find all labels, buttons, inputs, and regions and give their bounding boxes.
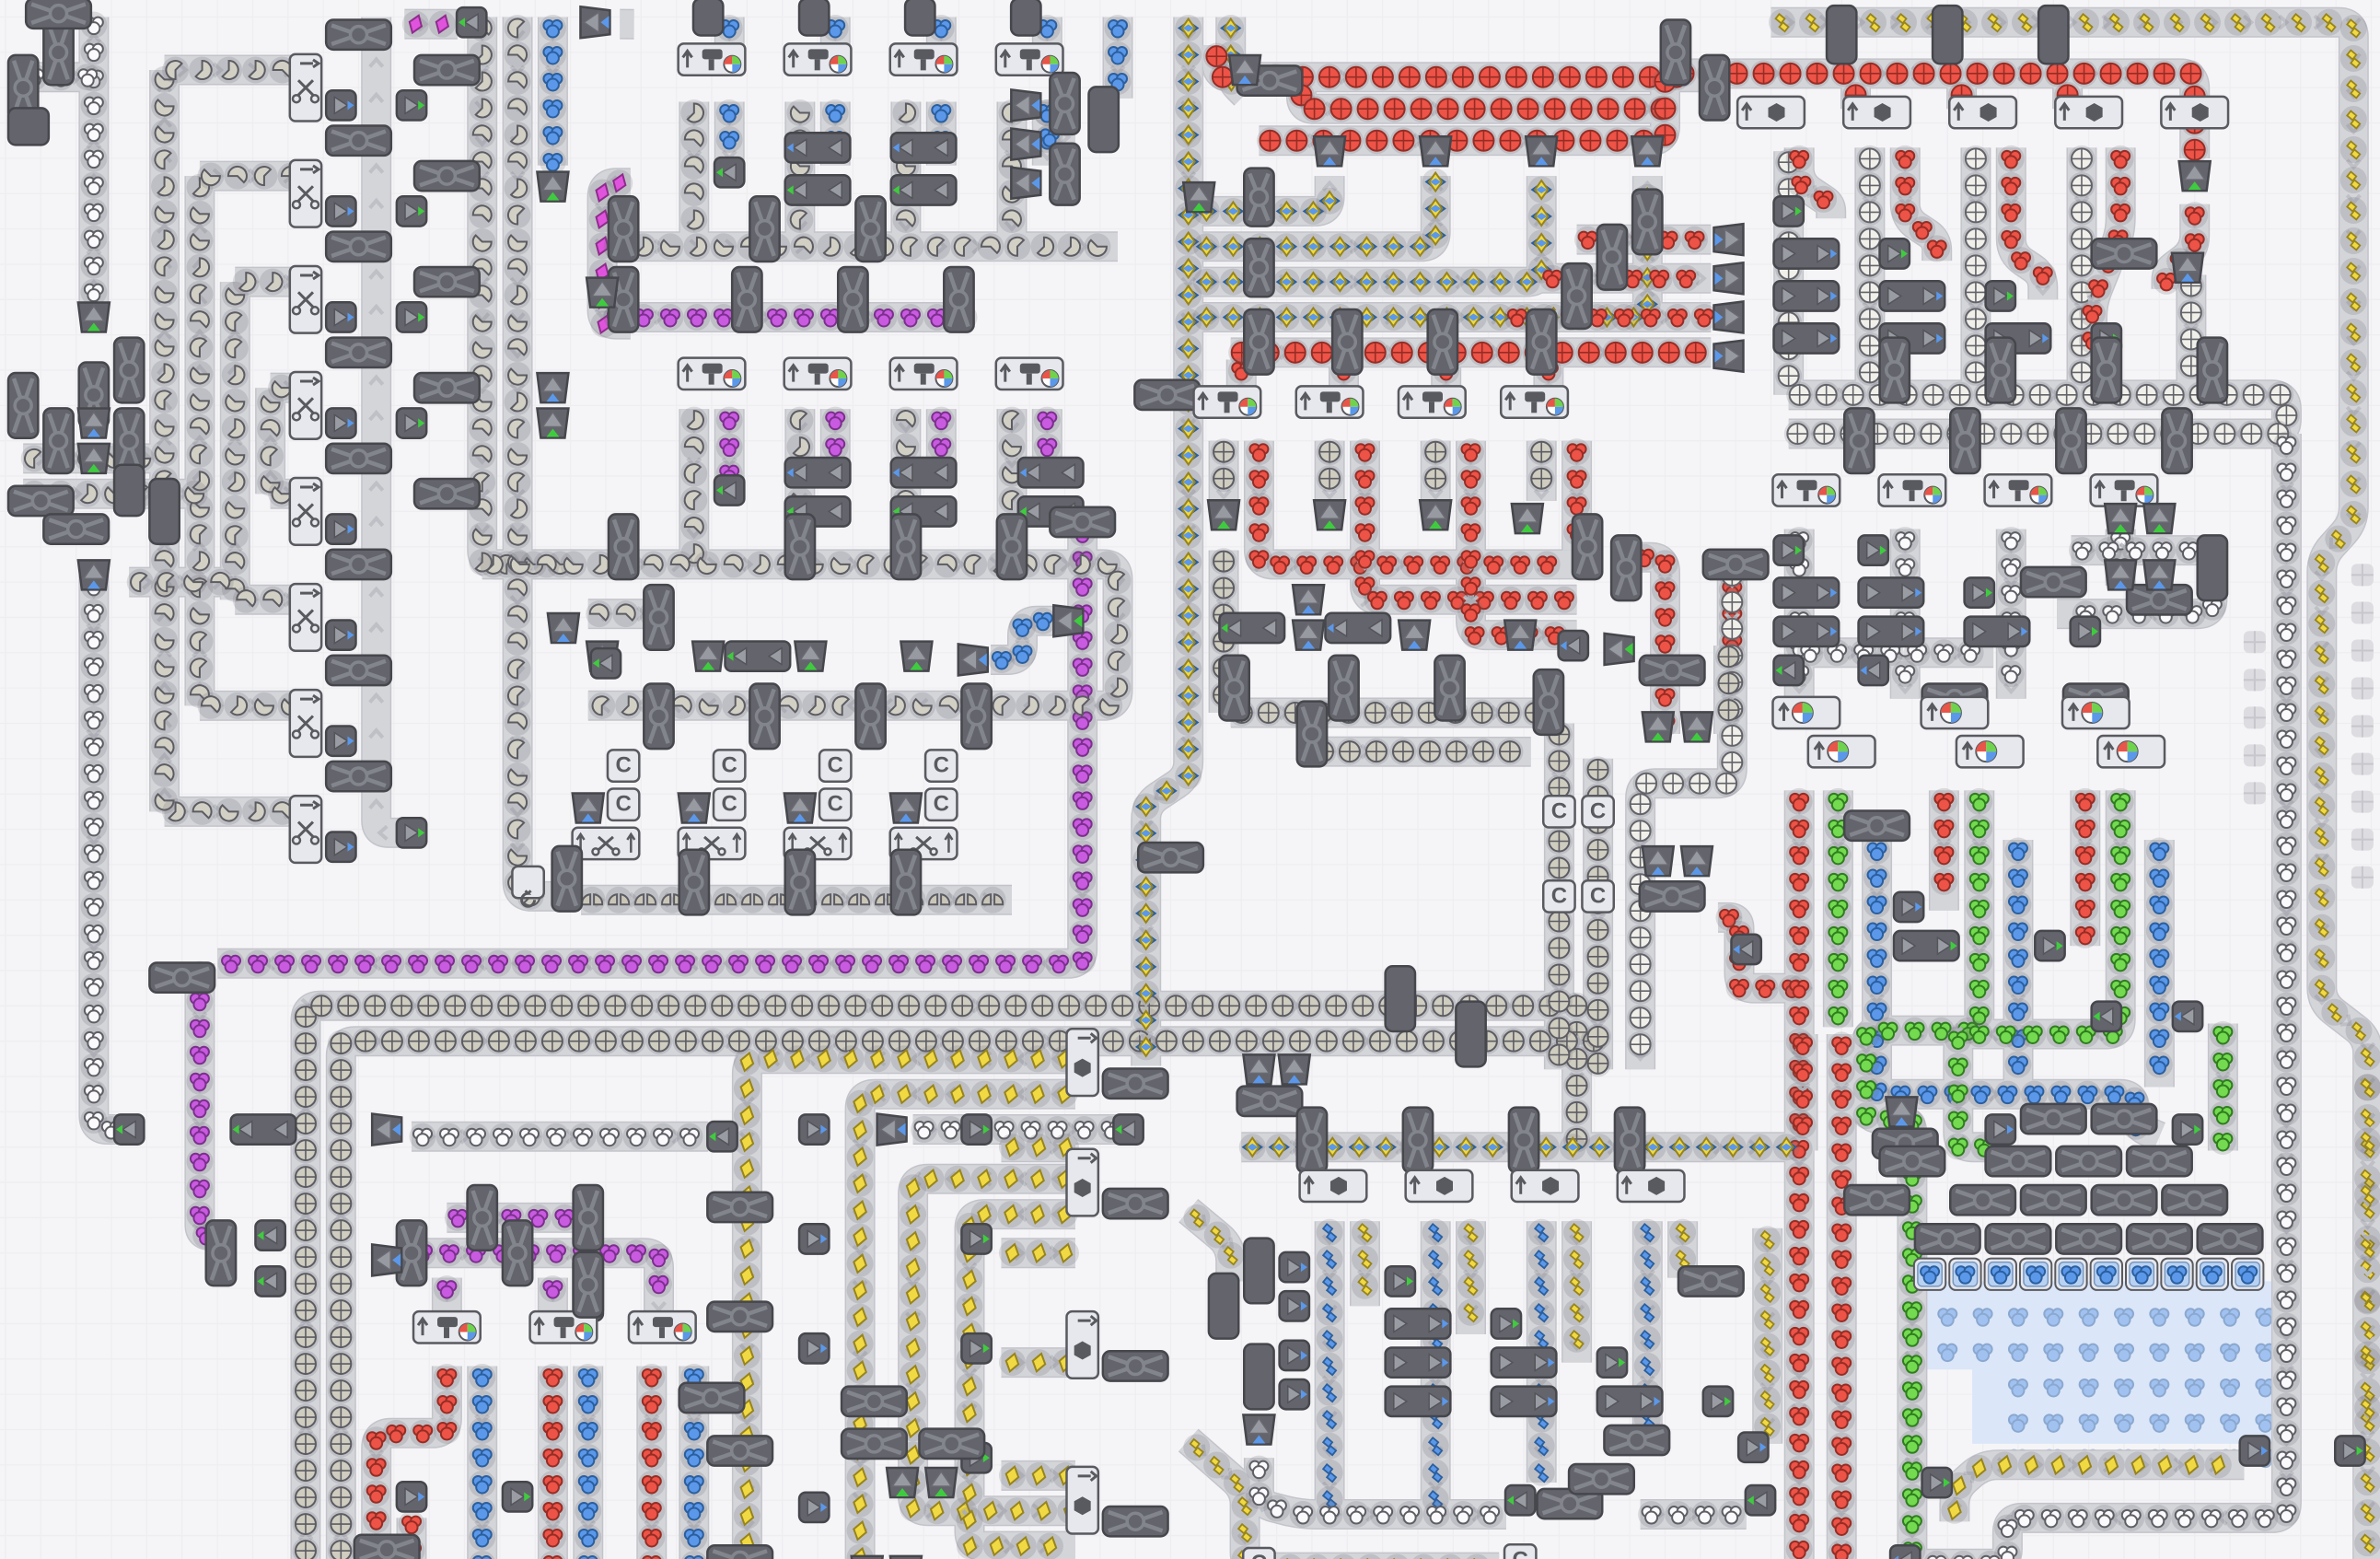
svg-text:C: C (722, 753, 737, 778)
svg-text:C: C (615, 753, 631, 778)
svg-text:C: C (934, 753, 949, 778)
svg-text:C: C (1590, 883, 1606, 908)
svg-text:C: C (1590, 798, 1606, 823)
svg-text:C: C (828, 792, 843, 817)
svg-text:C: C (934, 792, 949, 817)
svg-text:C: C (1513, 1547, 1528, 1559)
svg-text:C: C (828, 753, 843, 778)
svg-text:C: C (722, 792, 737, 817)
svg-text:C: C (1251, 1551, 1267, 1559)
svg-text:C: C (1551, 798, 1567, 823)
svg-text:C: C (1551, 883, 1567, 908)
svg-text:C: C (615, 792, 631, 817)
